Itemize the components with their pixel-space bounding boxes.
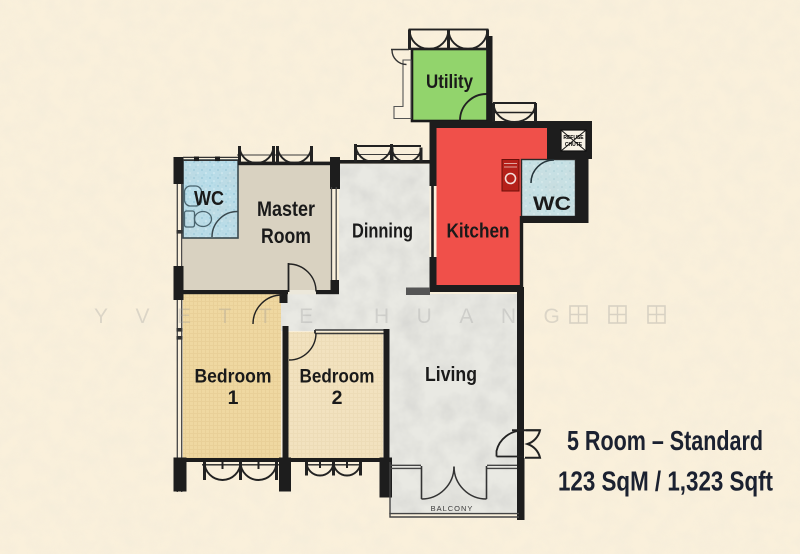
svg-text:Kitchen: Kitchen [447, 220, 510, 243]
svg-text:Utility: Utility [426, 71, 473, 93]
svg-text:REFUSE: REFUSE [563, 135, 584, 141]
svg-text:123 SqM / 1,323 Sqft: 123 SqM / 1,323 Sqft [558, 466, 773, 497]
svg-text:5 Room – Standard: 5 Room – Standard [567, 425, 763, 456]
svg-text:Living: Living [425, 364, 477, 386]
svg-text:1: 1 [228, 387, 239, 409]
svg-text:WC: WC [533, 193, 571, 215]
svg-text:BALCONY: BALCONY [431, 504, 474, 513]
svg-text:Room: Room [261, 225, 311, 248]
svg-text:Dinning: Dinning [352, 220, 413, 243]
svg-text:WC: WC [194, 187, 224, 210]
svg-text:2: 2 [332, 387, 343, 409]
svg-text:Bedroom: Bedroom [300, 366, 375, 388]
svg-text:Bedroom: Bedroom [195, 366, 272, 388]
svg-text:YVETTE HUANG: YVETTE HUANG [94, 305, 587, 328]
svg-text:Master: Master [257, 198, 315, 221]
svg-text:CHUTE: CHUTE [565, 142, 583, 148]
